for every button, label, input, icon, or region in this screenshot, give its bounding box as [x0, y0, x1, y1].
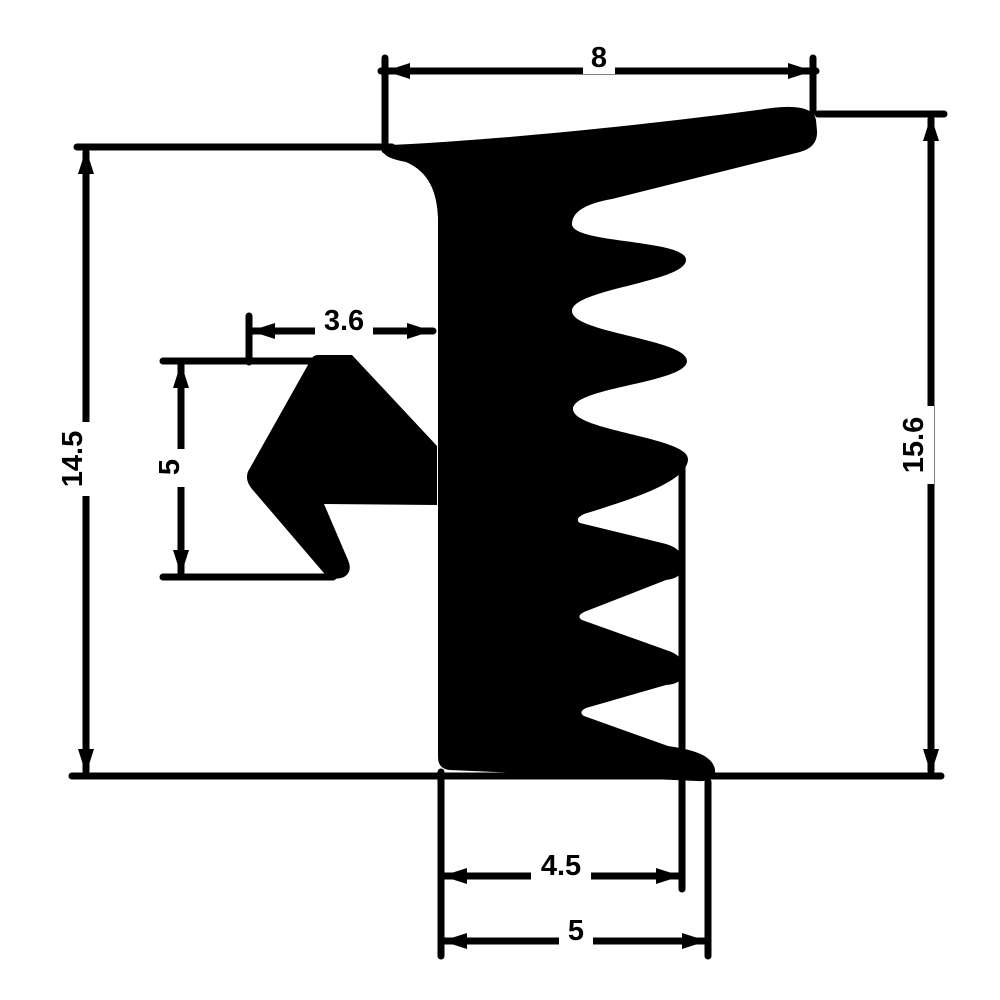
dim-label-right-height: 15.6 — [898, 417, 930, 473]
arrowhead-left-icon — [385, 63, 410, 79]
profile-barb — [247, 355, 437, 579]
arrowhead-up-icon — [78, 149, 94, 174]
arrowhead-down-icon — [173, 550, 189, 575]
dim-barb-width: 3.6 — [249, 305, 433, 362]
technical-drawing: 8 14.5 15.6 3.6 5 — [0, 0, 1000, 1000]
dim-label-foot-width-outer: 5 — [568, 915, 584, 947]
arrowhead-left-icon — [250, 323, 275, 339]
arrowhead-right-icon — [656, 868, 681, 884]
arrowhead-left-icon — [442, 868, 467, 884]
dim-label-left-height: 14.5 — [57, 431, 89, 487]
arrowhead-right-icon — [407, 323, 432, 339]
dim-label-barb-height: 5 — [154, 459, 186, 475]
arrowhead-down-icon — [78, 749, 94, 774]
arrowhead-right-icon — [788, 63, 813, 79]
profile-body — [383, 107, 817, 781]
seal-profile — [247, 107, 817, 781]
drawing-canvas: 8 14.5 15.6 3.6 5 — [0, 0, 1000, 1000]
dim-label-top-width: 8 — [591, 42, 607, 74]
arrowhead-up-icon — [923, 116, 939, 141]
dim-label-barb-width: 3.6 — [324, 305, 364, 337]
arrowhead-down-icon — [923, 749, 939, 774]
arrowhead-up-icon — [173, 363, 189, 388]
arrowhead-right-icon — [682, 933, 707, 949]
dim-label-foot-width-inner: 4.5 — [541, 850, 581, 882]
arrowhead-left-icon — [442, 933, 467, 949]
